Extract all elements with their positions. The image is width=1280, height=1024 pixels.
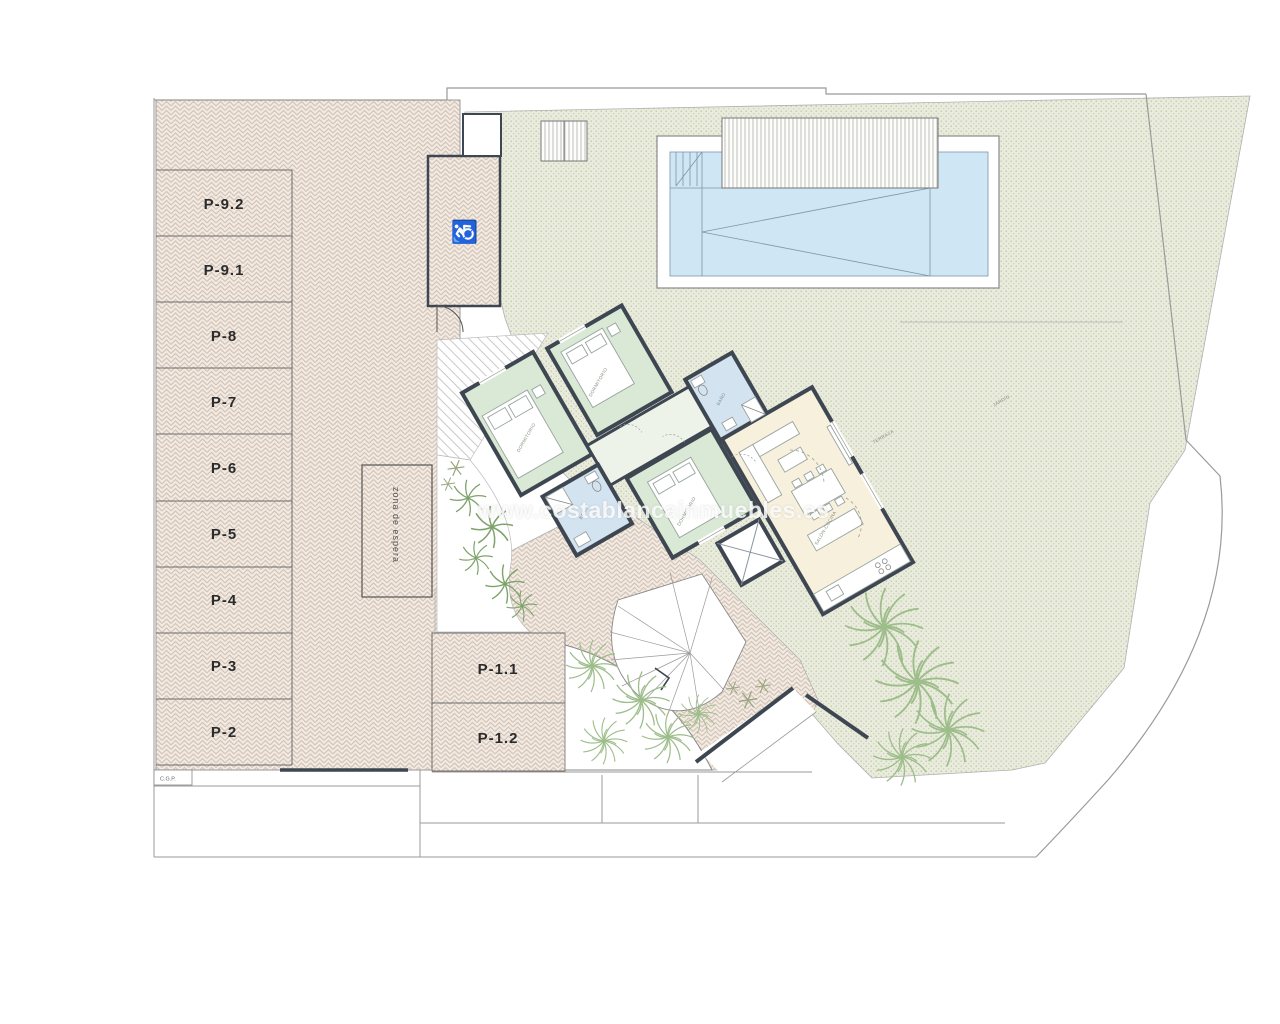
stall-label: P-9.1 <box>204 262 245 279</box>
small-hatched-box <box>541 121 587 161</box>
stall-label: P-2 <box>211 724 237 741</box>
cgp-marker: C.G.P. <box>154 770 192 785</box>
stall-label: P-4 <box>211 592 237 609</box>
waiting-zone-label: zona de espera <box>391 487 401 563</box>
front-parking-stalls: P-1.1 P-1.2 <box>432 633 565 771</box>
stall-label: P-6 <box>211 460 237 477</box>
stall-label: P-9.2 <box>204 196 245 213</box>
parking-area <box>156 100 460 770</box>
site-plan-page: P-9.2 P-9.1 P-8 P-7 P-6 P-5 P-4 P-3 P-2 … <box>0 0 1280 1024</box>
accessible-parking-stall: ♿ <box>428 156 500 306</box>
stall-label: P-7 <box>211 394 237 411</box>
storage-box <box>463 114 501 156</box>
stall-label: P-8 <box>211 328 237 345</box>
stall-label: P-5 <box>211 526 237 543</box>
pool-pergola <box>722 118 938 188</box>
stall-label: P-1.2 <box>478 730 519 747</box>
stall-label: P-3 <box>211 658 237 675</box>
cgp-label: C.G.P. <box>160 777 176 783</box>
waiting-zone-box: zona de espera <box>362 465 432 597</box>
stall-label: P-1.1 <box>478 661 519 678</box>
wheelchair-icon: ♿ <box>452 218 477 245</box>
watermark: www.costablancainmuebles.es <box>478 497 858 524</box>
swimming-pool <box>657 118 999 288</box>
